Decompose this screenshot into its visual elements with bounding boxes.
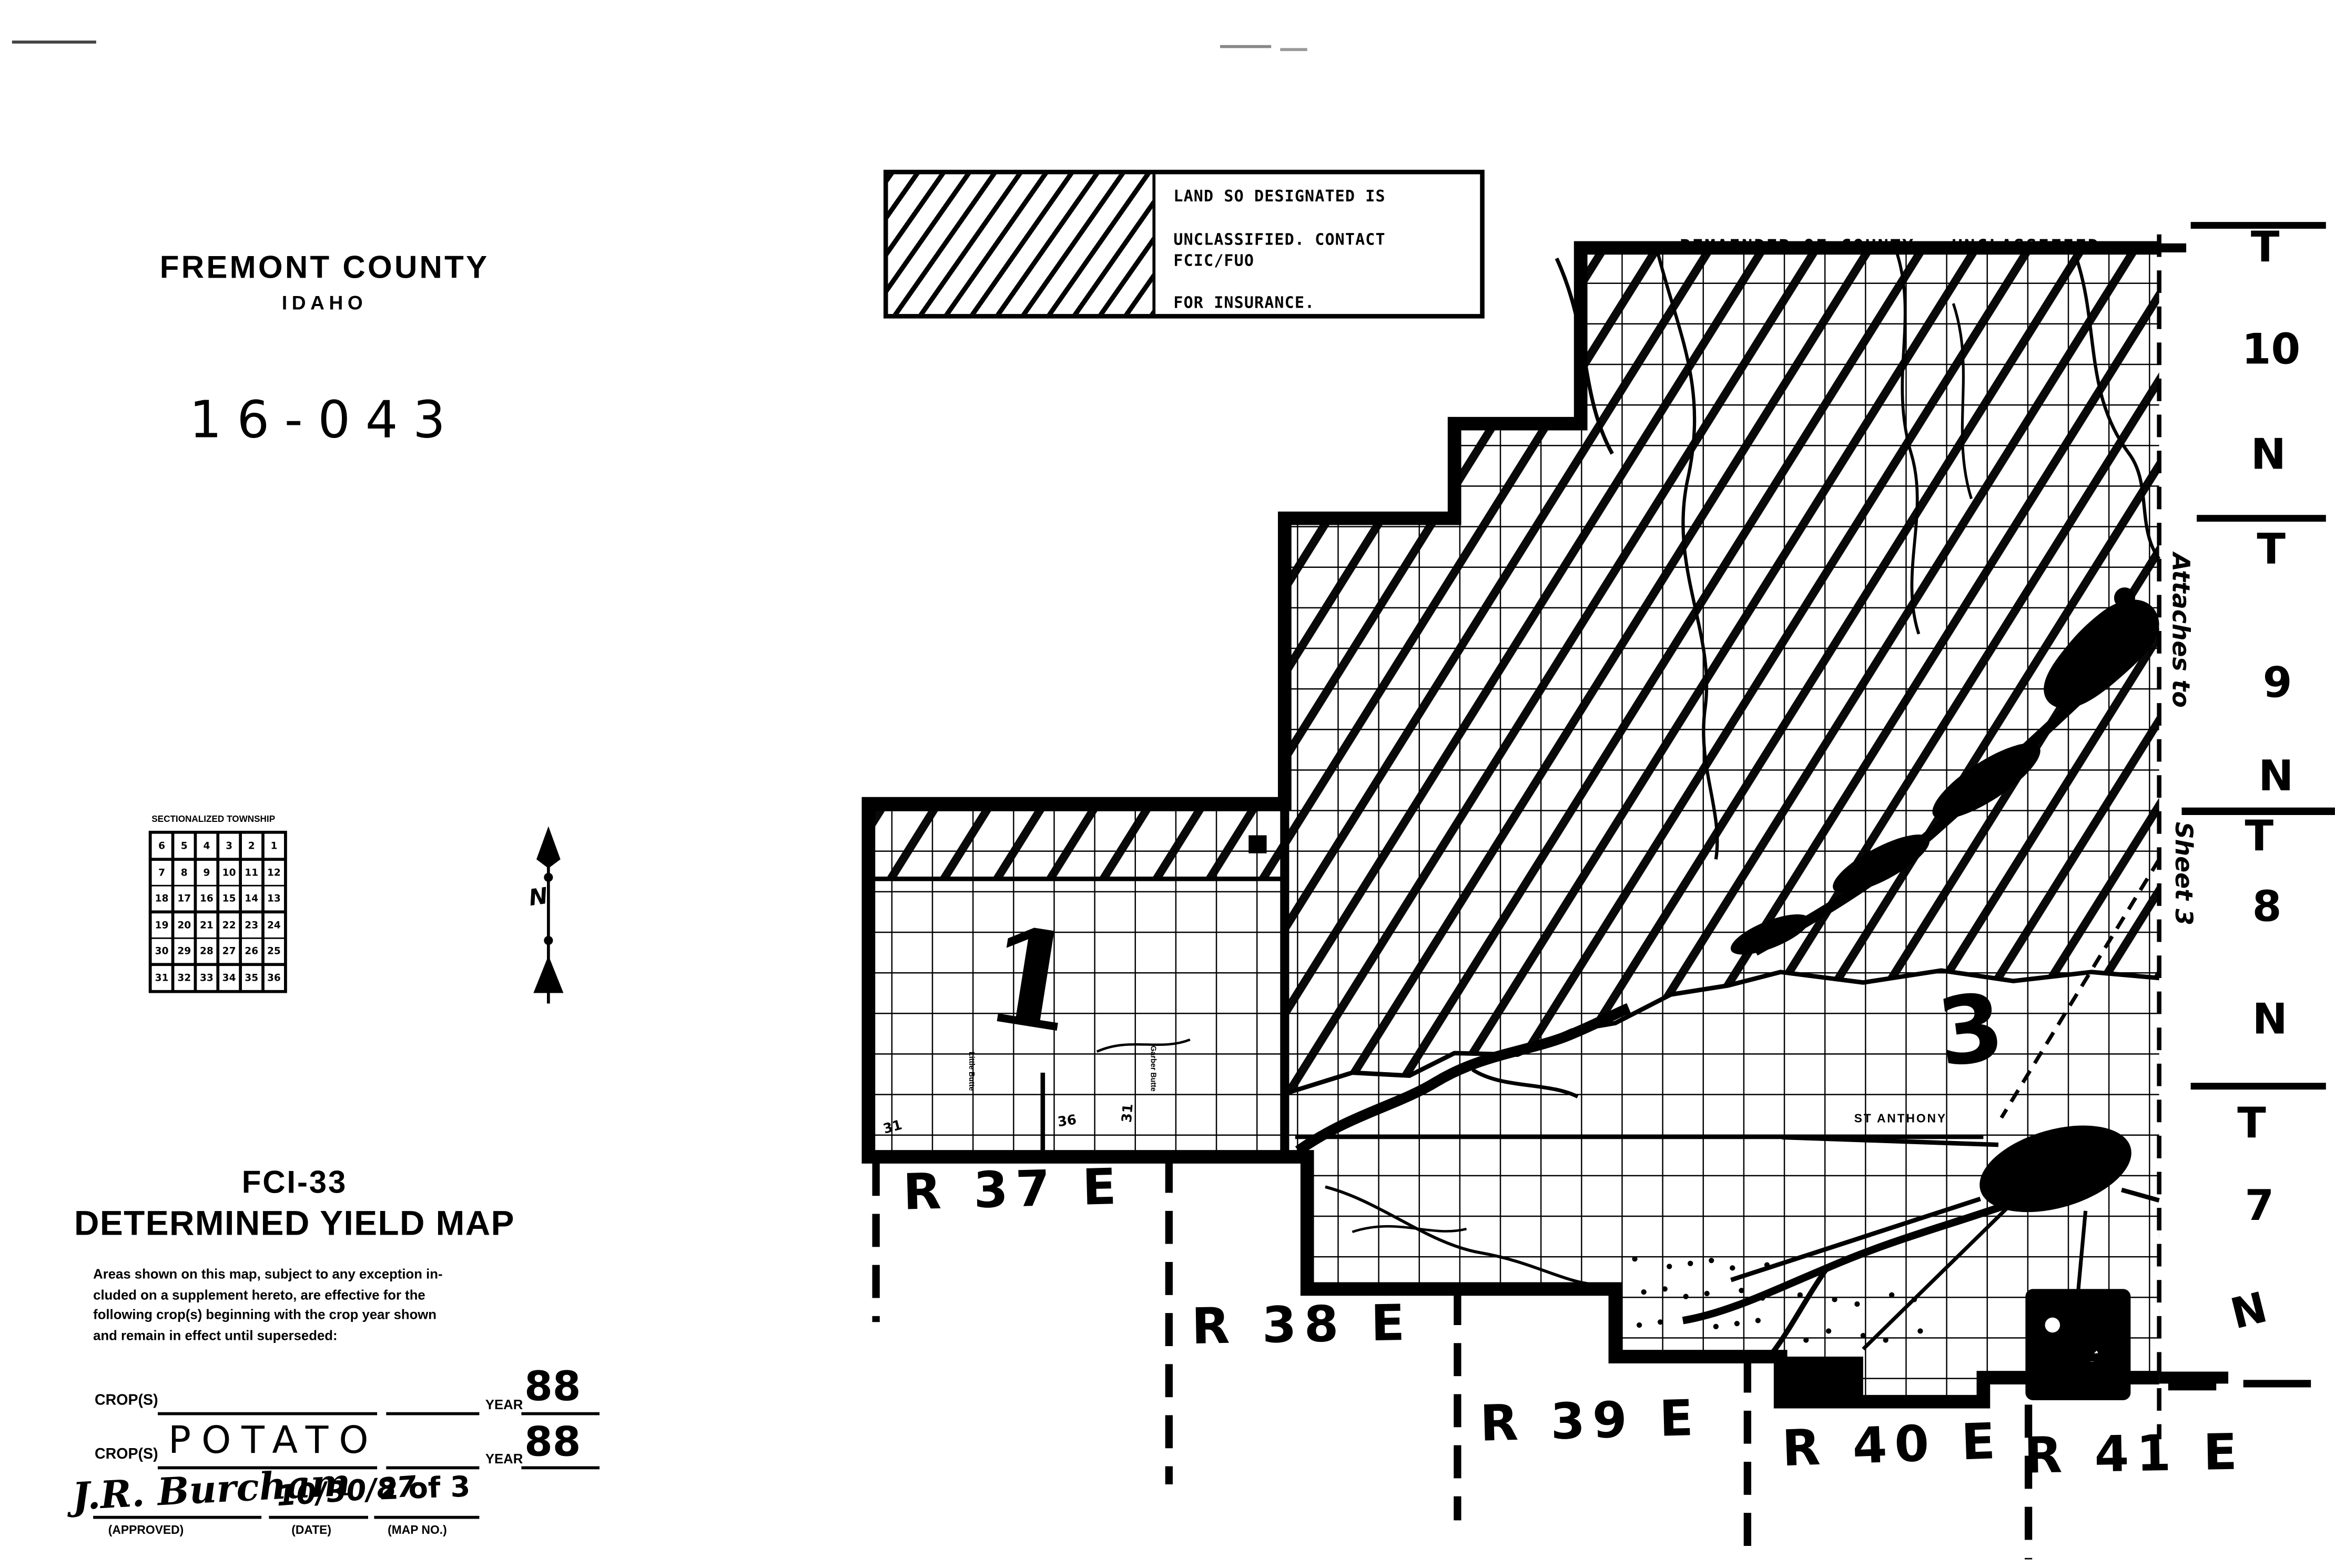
section-cell: 22 <box>219 913 239 938</box>
section-cell: 27 <box>219 940 239 964</box>
township-label-t10n: T <box>2251 222 2280 272</box>
north-arrow-icon <box>533 826 563 1003</box>
range-label-r38e: R 38 E <box>1191 1293 1413 1356</box>
township-label-t7n: T <box>2237 1098 2266 1148</box>
crop-label-1: CROP(S) <box>95 1393 158 1409</box>
section-cell: 32 <box>174 966 194 990</box>
section-cell: 17 <box>174 887 194 911</box>
attachment-note-line2: Sheet 3 <box>2170 822 2198 925</box>
section-cell: 19 <box>152 913 172 938</box>
date-caption: (DATE) <box>291 1523 331 1537</box>
section-cell: 31 <box>152 966 172 990</box>
range-label-r37e: R 37 E <box>902 1157 1124 1221</box>
year-value-1: 88 <box>524 1364 581 1411</box>
crop-label-2: CROP(S) <box>95 1447 158 1463</box>
section-cell: 10 <box>219 860 239 884</box>
approved-caption: (APPROVED) <box>108 1523 184 1537</box>
map-number: 2 of 3 <box>378 1471 471 1507</box>
range-label-r40e: R 40 E <box>1781 1411 2004 1478</box>
crop-field-1 <box>158 1412 377 1416</box>
determined-yield-map-page: FREMONT COUNTY IDAHO 16-043 LAND SO DESI… <box>0 0 2335 1568</box>
crop-value-potato: POTATO <box>168 1418 379 1462</box>
note-line: cluded on a supplement hereto, are effec… <box>93 1288 508 1302</box>
legend-line: LAND SO DESIGNATED IS <box>1173 186 1474 207</box>
township-label-t8n: T <box>2245 811 2274 861</box>
section-cell: 16 <box>197 887 217 911</box>
attachment-note-line1: Attaches to <box>2167 553 2195 707</box>
compass-n-label: N <box>527 882 550 912</box>
city-label-st-anthony: ST ANTHONY <box>1854 1112 1947 1125</box>
township-label-t9n: T <box>2257 524 2286 574</box>
section-cell: 15 <box>219 887 239 911</box>
township-label-t10n: N <box>2251 430 2286 479</box>
section-cell: 6 <box>152 834 172 858</box>
legend-box: LAND SO DESIGNATED IS UNCLASSIFIED. CONT… <box>884 170 1485 319</box>
year-label-2: YEAR <box>485 1451 523 1467</box>
form-code: FCI-33 <box>90 1166 499 1202</box>
section-cell: 28 <box>197 940 217 964</box>
year-value-2: 88 <box>524 1420 581 1467</box>
legend-text: LAND SO DESIGNATED IS UNCLASSIFIED. CONT… <box>1173 186 1474 335</box>
crop-field-2b <box>386 1467 479 1470</box>
township-label-t9n: 9 <box>2263 658 2292 707</box>
section-number: 31 <box>1121 1103 1138 1123</box>
map-title: DETERMINED YIELD MAP <box>36 1204 553 1244</box>
range-label-r39e: R 39 E <box>1479 1388 1701 1452</box>
section-cell: 25 <box>264 940 284 964</box>
section-cell: 35 <box>241 966 261 990</box>
section-cell: 2 <box>241 834 261 858</box>
township-label-t8n: N <box>2252 994 2288 1044</box>
township-label-t10n: 10 <box>2242 324 2300 374</box>
remainder-note: REMAINDER OF COUNTY: UNCLASSIFIED <box>1680 236 2100 257</box>
section-cell: 5 <box>174 834 194 858</box>
section-number: 36 <box>1057 1114 1078 1131</box>
sectionalized-township-title: SECTIONALIZED TOWNSHIP <box>141 816 286 824</box>
legend-line: FOR INSURANCE. <box>1173 293 1474 314</box>
crop-field-1b <box>386 1412 479 1416</box>
section-cell: 12 <box>264 860 284 884</box>
section-cell: 29 <box>174 940 194 964</box>
section-cell: 36 <box>264 966 284 990</box>
section-cell: 26 <box>241 940 261 964</box>
section-cell: 24 <box>264 913 284 938</box>
section-cell: 14 <box>241 887 261 911</box>
date-line <box>269 1516 368 1519</box>
map-no-caption: (MAP NO.) <box>388 1523 447 1537</box>
section-cell: 7 <box>152 860 172 884</box>
section-cell: 4 <box>197 834 217 858</box>
legend-line: UNCLASSIFIED. CONTACT FCIC/FUO <box>1173 229 1474 271</box>
section-cell: 11 <box>241 860 261 884</box>
township-label-t9n: N <box>2258 751 2293 801</box>
butte-label: Little Butte <box>966 1052 975 1091</box>
section-cell: 33 <box>197 966 217 990</box>
section-cell: 30 <box>152 940 172 964</box>
section-cell: 23 <box>241 913 261 938</box>
note-line: following crop(s) beginning with the cro… <box>93 1309 508 1322</box>
effective-note: Areas shown on this map, subject to any … <box>93 1268 508 1349</box>
township-ticks <box>2134 226 2335 1387</box>
year-field-2 <box>521 1467 600 1470</box>
township-label-t7n: 7 <box>2245 1181 2275 1230</box>
county-code: 16-043 <box>189 391 461 451</box>
section-cell: 13 <box>264 887 284 911</box>
hatch-swatch-icon <box>888 174 1156 314</box>
section-cell: 1 <box>264 834 284 858</box>
scanned-document: FREMONT COUNTY IDAHO 16-043 LAND SO DESI… <box>0 0 2335 1568</box>
range-label-r41e: R 41 E <box>2024 1422 2245 1485</box>
year-label-1: YEAR <box>485 1397 523 1412</box>
section-cell: 20 <box>174 913 194 938</box>
section-cell: 8 <box>174 860 194 884</box>
section-cell: 34 <box>219 966 239 990</box>
township-label-t8n: 8 <box>2252 882 2282 931</box>
county-title: FREMONT COUNTY <box>150 251 499 287</box>
section-cell: 21 <box>197 913 217 938</box>
note-line: Areas shown on this map, subject to any … <box>93 1268 508 1281</box>
section-cell: 18 <box>152 887 172 911</box>
map-number-line <box>374 1516 479 1519</box>
sectionalized-grid: 6543217891011121817161514131920212223243… <box>149 831 287 993</box>
sheet-number-2: 2 <box>2074 1311 2119 1372</box>
section-cell: 3 <box>219 834 239 858</box>
signature-line <box>93 1516 261 1519</box>
section-cell: 9 <box>197 860 217 884</box>
state-title: IDAHO <box>150 291 499 314</box>
note-line: and remain in effect until superseded: <box>93 1329 508 1342</box>
sheet-number-3: 3 <box>1933 981 2008 1081</box>
butte-label: Garber Butte <box>1148 1046 1157 1092</box>
year-field-1 <box>521 1412 600 1416</box>
